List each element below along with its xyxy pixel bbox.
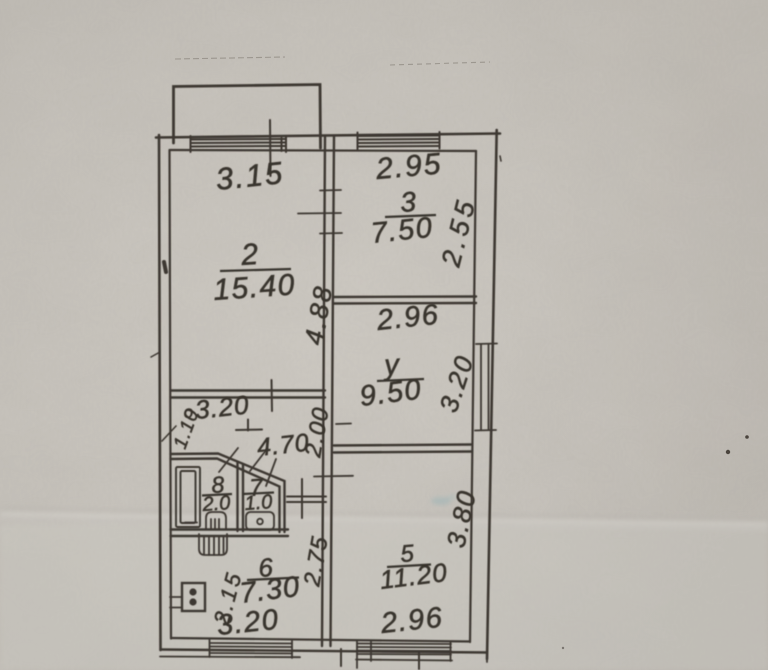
svg-text:2: 2 [239, 238, 259, 272]
svg-text:15.40: 15.40 [212, 268, 297, 307]
svg-text:2.96: 2.96 [374, 299, 440, 337]
svg-text:7.50: 7.50 [369, 212, 434, 250]
svg-text:3.20: 3.20 [193, 389, 250, 425]
svg-text:2.95: 2.95 [374, 147, 444, 186]
svg-text:2.0: 2.0 [201, 492, 231, 516]
svg-text:2.96: 2.96 [378, 602, 444, 640]
svg-text:1.0: 1.0 [244, 491, 273, 515]
svg-text:3.20: 3.20 [215, 604, 280, 642]
svg-text:3.15: 3.15 [214, 155, 286, 197]
